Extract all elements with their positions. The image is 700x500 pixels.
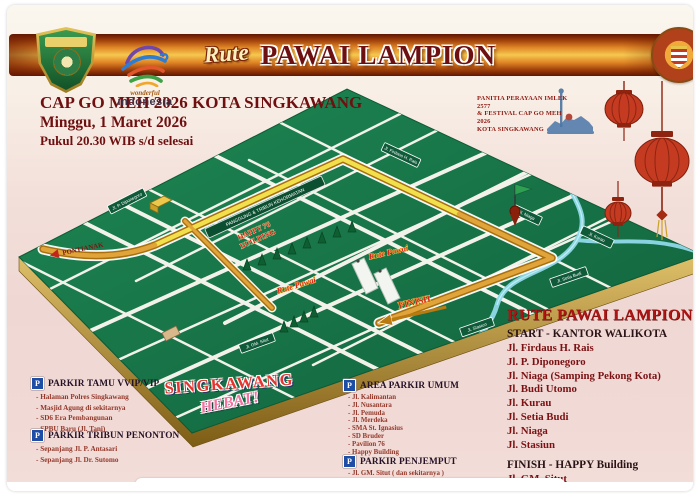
route-street: Jl. Budi Utomo (507, 383, 693, 397)
committee-line3: KOTA SINGKAWANG (477, 126, 569, 134)
city-crest-inner (39, 30, 93, 90)
svg-text:PANGGUNG & TRIBUN KEHORMATAN: PANGGUNG & TRIBUN KEHORMATAN (225, 187, 306, 228)
route-street: Jl. Stasiun (507, 439, 693, 453)
legend-item: SD Bruder (343, 433, 493, 441)
svg-text:BUILDING: BUILDING (238, 227, 276, 251)
route-street: Jl. Kurau (507, 397, 693, 411)
legend-item: SMA St. Ignasius (343, 425, 493, 433)
legend-item: Jl. GM. Situt ( dan sekitarnya ) (343, 470, 513, 478)
route-panel: RUTE PAWAI LAMPION START - KANTOR WALIKO… (507, 307, 693, 485)
svg-text:Jl. Kurau: Jl. Kurau (588, 231, 606, 243)
city-crest-band (45, 37, 86, 47)
finish-label: FINISH (374, 291, 447, 328)
pontianak-arrow: PONTIANAK (49, 240, 105, 260)
bottom-margin-strip (7, 482, 693, 491)
route-street: Jl. Setia Budi (507, 411, 693, 425)
svg-text:Jl. Setia Budi: Jl. Setia Budi (556, 271, 582, 284)
parking-zones (352, 258, 400, 304)
legend-item: Masjid Agung di sekitarnya (31, 403, 191, 414)
committee-line2: & FESTIVAL CAP GO MEH 2026 (477, 110, 569, 125)
svg-text:Jl. P. Diponegoro: Jl. P. Diponegoro (111, 191, 143, 211)
event-date: Minggu, 1 Maret 2026 (40, 114, 362, 133)
route-title: RUTE PAWAI LAMPION (507, 307, 693, 325)
indonesia-text: indonesia (103, 96, 187, 108)
banner-script-word: Rute (203, 39, 249, 68)
legend-vvip-header: PARKIR TAMU VVIP/VIP (48, 379, 159, 389)
banner-title: PAWAI LAMPION (261, 40, 496, 71)
legend-parkir-vvip: P PARKIR TAMU VVIP/VIP Halaman Polres Si… (31, 377, 191, 434)
svg-text:Jl. GM. Situt: Jl. GM. Situt (245, 336, 270, 349)
svg-text:HAPPY 76: HAPPY 76 (236, 219, 272, 242)
legend-item: Sepanjang Jl. Dr. Sutomo (31, 455, 191, 466)
event-time: Pukul 20.30 WIB s/d selesai (40, 133, 362, 149)
tree-row (243, 221, 356, 332)
stage-strip-label: PANGGUNG & TRIBUN KEHORMATAN (205, 176, 326, 238)
legend-item: Halaman Polres Singkawang (31, 392, 191, 403)
legend-item: Jl. Pemuda (343, 410, 493, 418)
legend-umum-header: AREA PARKIR UMUM (360, 381, 459, 391)
route-street: Jl. P. Diponegoro (507, 356, 693, 370)
wonderful-indonesia-logo: wonderful indonesia (103, 41, 187, 108)
svg-text:Jl. Firdaus H. Rais: Jl. Firdaus H. Rais (384, 145, 419, 165)
route-label-b: Rute Pawai (367, 243, 410, 262)
svg-text:PONTIANAK: PONTIANAK (62, 241, 105, 257)
route-finish: FINISH - HAPPY Building (507, 459, 693, 471)
happy-building-label: HAPPY 76 BUILDING (235, 219, 277, 251)
parking-icon: P (343, 379, 356, 392)
parade-route (43, 159, 552, 323)
route-street: Jl. Niaga (507, 425, 693, 439)
legend-item: Jl. Kalimantan (343, 394, 493, 402)
legend-item: SD6 Era Pembangunan (31, 413, 191, 424)
legend-item: Sepanjang Jl. P. Antasari (31, 444, 191, 455)
svg-text:Jl. Niaga: Jl. Niaga (518, 209, 536, 221)
committee-line1: PANITIA PERAYAAN IMLEK 2577 (477, 95, 569, 110)
event-info: CAP GO MEH 2026 KOTA SINGKAWANG Minggu, … (40, 93, 362, 149)
event-title: CAP GO MEH 2026 KOTA SINGKAWANG (40, 93, 362, 114)
legend-item: Jl. Merdeka (343, 417, 493, 425)
city-crest-emblem (53, 48, 81, 76)
start-flag-marker (510, 184, 532, 226)
city-crest-logo (36, 27, 96, 93)
legend-tribun-header: PARKIR TRIBUN PENONTON (48, 431, 179, 441)
legend-item: Pavilion 76 (343, 441, 493, 449)
legend-penjemput-header: PARKIR PENJEMPUT (360, 457, 457, 467)
lantern-decorations (605, 81, 689, 240)
poster-background: PANGGUNG & TRIBUN KEHORMATAN Jl. P. Dipo… (7, 5, 693, 491)
svg-text:Rute Pawai: Rute Pawai (367, 243, 410, 262)
route-street: Jl. Firdaus H. Rais (507, 342, 693, 356)
legend-parkir-tribun: P PARKIR TRIBUN PENONTON Sepanjang Jl. P… (31, 429, 191, 465)
route-street: Jl. Niaga (Samping Pekong Kota) (507, 370, 693, 384)
route-label-a: Rute Pawai (274, 274, 317, 296)
svg-text:FINISH: FINISH (397, 294, 432, 311)
wonderful-indonesia-bird-icon (103, 41, 187, 87)
route-start: START - KANTOR WALIKOTA (507, 328, 693, 340)
legend-item: Jl. Nusantara (343, 402, 493, 410)
parking-icon: P (31, 377, 44, 390)
svg-text:Rute Pawai: Rute Pawai (274, 274, 317, 296)
legend-area-parkir-umum: P AREA PARKIR UMUM Jl. Kalimantan Jl. Nu… (343, 379, 493, 456)
committee-caption: PANITIA PERAYAAN IMLEK 2577 & FESTIVAL C… (477, 95, 569, 133)
svg-text:Jl. Stasiun: Jl. Stasiun (467, 321, 488, 333)
legend-parkir-penjemput: P PARKIR PENJEMPUT Jl. GM. Situt ( dan s… (343, 455, 513, 478)
badge-striped-shield (671, 46, 687, 68)
parking-icon: P (343, 455, 356, 468)
parking-icon: P (31, 429, 44, 442)
